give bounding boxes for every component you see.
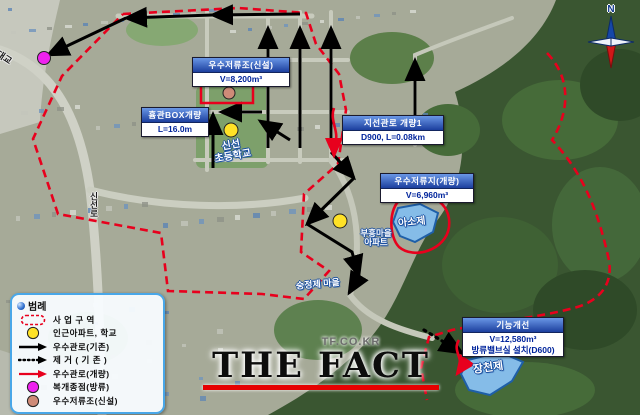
callout-value: D900, L=0.08km [343,131,443,144]
legend-label: 제 거 ( 기 존 ) [53,354,107,366]
legend-item-project-area: 사 업 구 역 [17,313,158,327]
improved-pipe-symbol [17,369,49,379]
removal-pipe-symbol [17,355,49,365]
legend-title: 범례 [17,298,158,313]
vertical-road-label: 신선로 [88,192,100,218]
watermark: TF.CO.KR THE FACT [203,336,439,390]
callout-title: 흄관BOX개량 [142,108,208,123]
callout-value: V=8,200m³ [193,73,289,86]
new-storage-marker [223,87,235,99]
watermark-brand: THE FACT [203,348,439,383]
callout-value2: 방류밸브실 설치(D600) [465,345,561,356]
legend-label: 우수관로(기존) [53,341,110,353]
legend-label: 우수저류조(신설) [53,395,118,407]
legend-item-existing-pipe: 우수관로(기존) [17,340,158,354]
compass-rose: N [586,5,636,71]
legend-bullet-icon [17,302,25,310]
legend-item-improved-pipe: 우수관로(개량) [17,367,158,381]
project-area-symbol [17,314,49,326]
apartment-label-line2: 아파트 [350,238,402,247]
legend-item-new-storage: 우수저류조(신설) [17,394,158,408]
callout-title: 지선관로 개량1 [343,116,443,131]
legend-item-removal: 제 거 ( 기 존 ) [17,354,158,368]
poi-circle-symbol [17,326,49,340]
compass-star-icon [586,15,636,69]
callout-value: L=16.0m [142,123,208,136]
legend-item-poi: 인근아파트, 학교 [17,327,158,341]
callout-value: V=12,580m³ [465,334,561,345]
callout-hume-box: 흄관BOX개량 L=16.0m [141,107,209,137]
callout-function-improve: 기능개선 V=12,580m³ 방류밸브실 설치(D600) [462,317,564,357]
callout-title: 기능개선 [463,318,563,333]
legend-label: 사 업 구 역 [53,314,95,326]
legend-title-text: 범례 [28,298,46,313]
legend-label: 복개종점(방류) [53,381,110,393]
new-storage-symbol [17,394,49,408]
legend-item-outlet: 복개종점(방류) [17,381,158,395]
compass-n-label: N [586,5,636,15]
poi-marker-school [224,123,238,137]
callout-branch-pipe: 지선관로 개량1 D900, L=0.08km [342,115,444,145]
callout-title: 우수저류조(신설) [193,58,289,73]
callout-value: V=6,960m³ [381,189,473,202]
apartment-label: 부흥마을 아파트 [350,229,402,248]
poi-marker-apartment [333,214,347,228]
legend-panel: 범례 사 업 구 역 인근아파트, 학교 우수관로(기존) 제 거 ( 기 존 [10,293,165,414]
map-canvas: 우수저류조(신설) V=8,200m³ 흄관BOX개량 L=16.0m 지선관로… [0,0,640,415]
outlet-marker [38,52,51,65]
existing-pipe-symbol [17,342,49,352]
callout-title: 우수저류지(개량) [381,174,473,189]
legend-label: 우수관로(개량) [53,368,110,380]
callout-storage-improved: 우수저류지(개량) V=6,960m³ [380,173,474,203]
callout-storage-new: 우수저류조(신설) V=8,200m³ [192,57,290,87]
legend-label: 인근아파트, 학교 [53,327,117,339]
outlet-point-symbol [17,380,49,394]
